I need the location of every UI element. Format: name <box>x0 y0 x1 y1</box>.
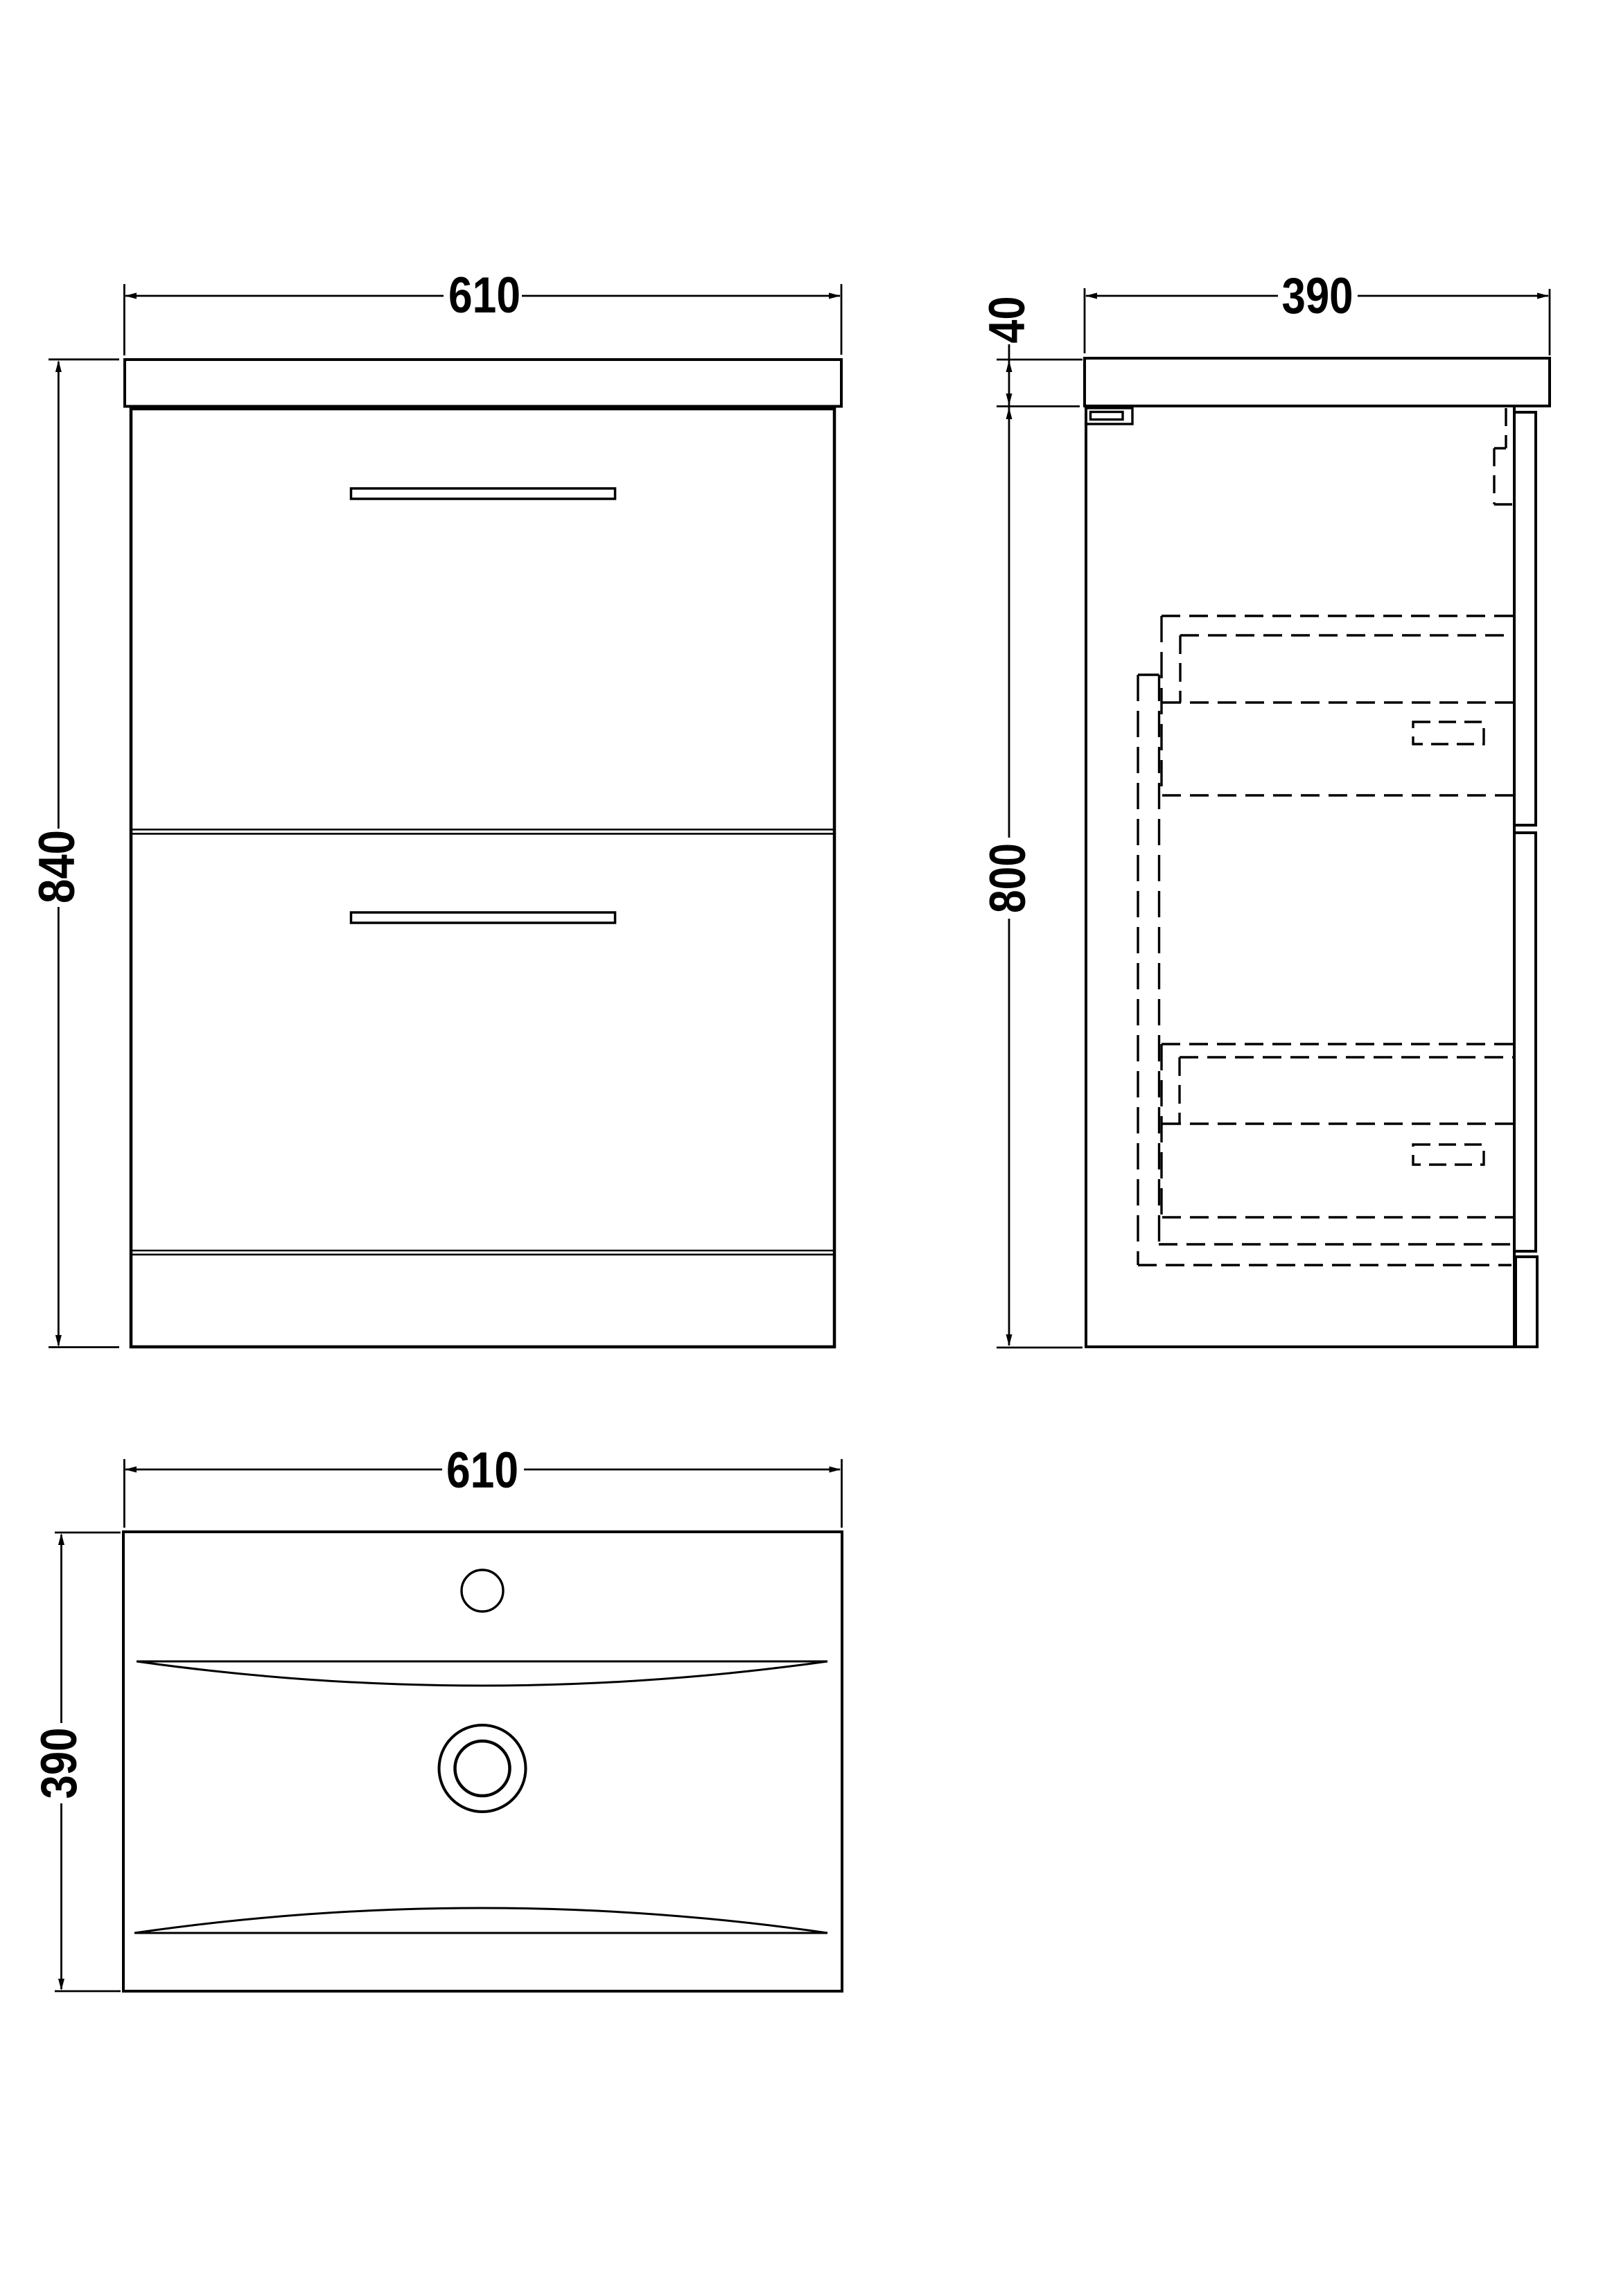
svg-text:390: 390 <box>31 1728 87 1799</box>
svg-text:800: 800 <box>980 843 1036 913</box>
svg-text:610: 610 <box>448 267 520 324</box>
svg-text:40: 40 <box>979 297 1035 344</box>
svg-text:390: 390 <box>1282 268 1353 324</box>
svg-text:840: 840 <box>29 830 85 903</box>
svg-text:610: 610 <box>446 1442 518 1499</box>
